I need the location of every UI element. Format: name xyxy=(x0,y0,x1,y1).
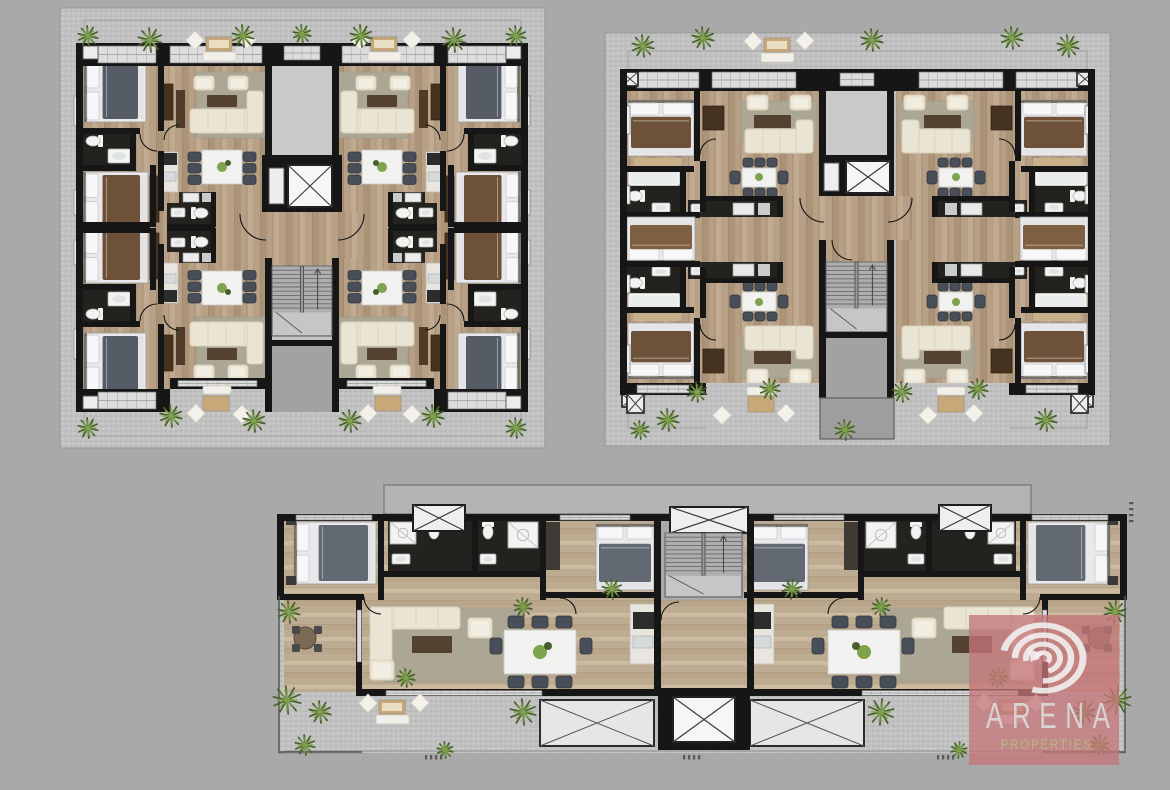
svg-text:ARENA: ARENA xyxy=(986,696,1118,736)
svg-text:PROPERTIES: PROPERTIES xyxy=(1001,737,1093,752)
